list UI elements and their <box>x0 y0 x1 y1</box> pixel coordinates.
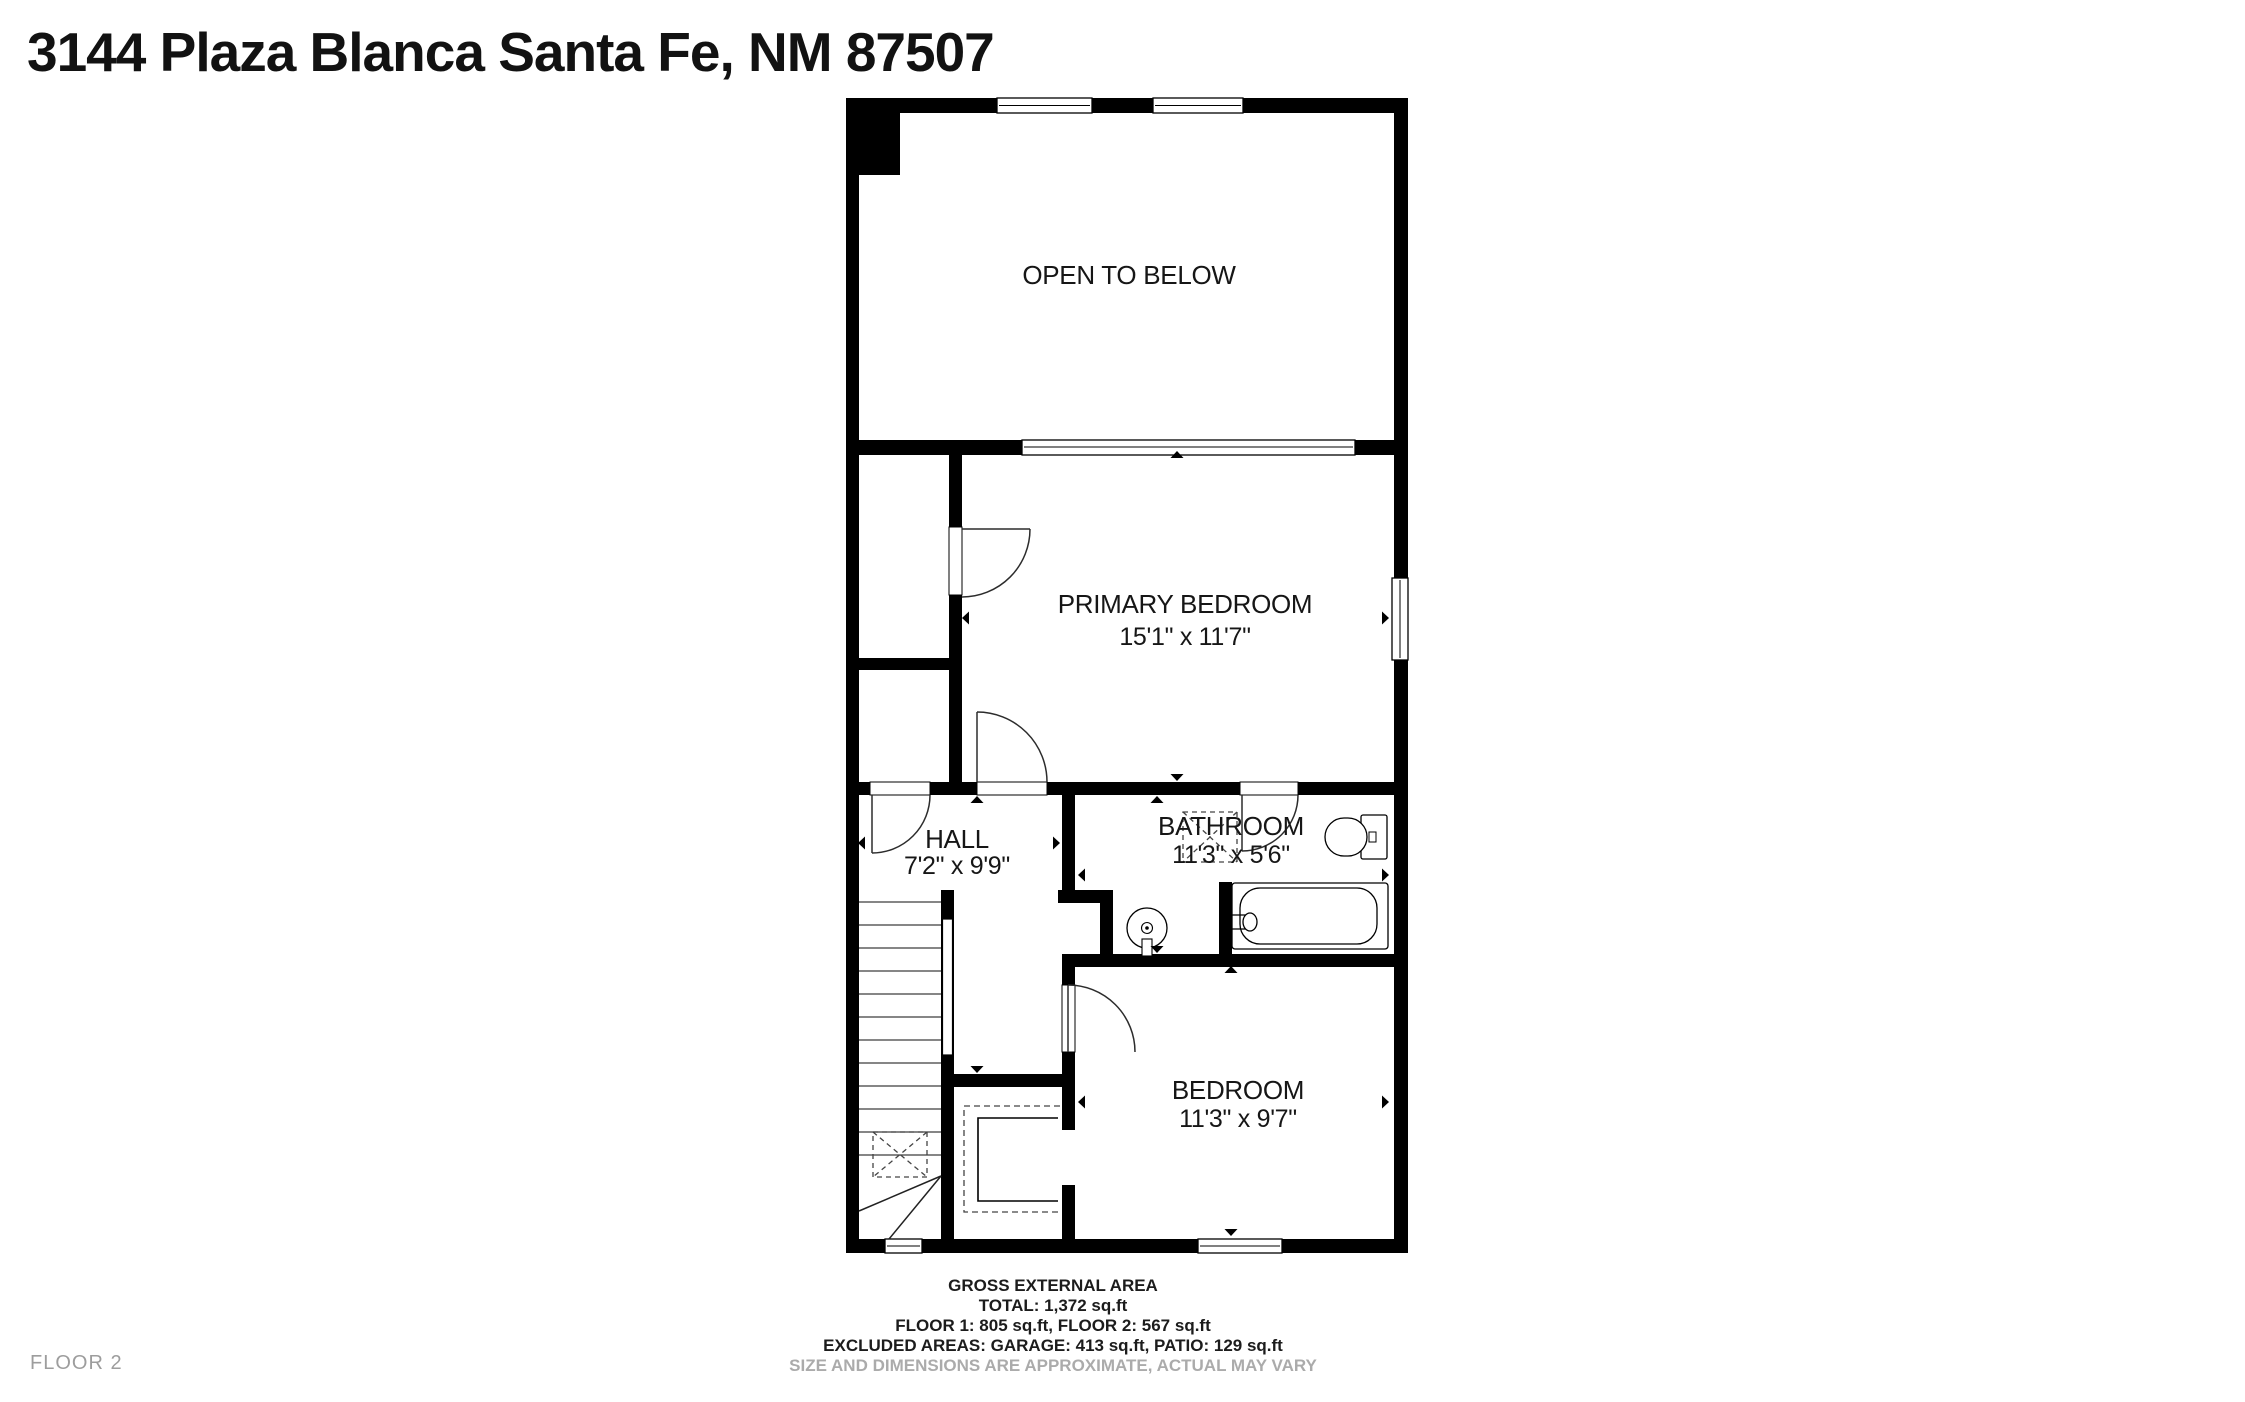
marker-up <box>1151 796 1164 803</box>
area-summary-total: TOTAL: 1,372 sq.ft <box>703 1296 1403 1316</box>
stair-winder-line <box>889 1176 941 1239</box>
area-summary-excluded: EXCLUDED AREAS: GARAGE: 413 sq.ft, PATIO… <box>703 1336 1403 1356</box>
door-arc <box>977 712 1047 782</box>
door-opening <box>1240 782 1298 795</box>
wall-corner-block <box>846 98 900 175</box>
marker-down <box>1225 1229 1238 1236</box>
bathtub-icon <box>1228 883 1388 949</box>
door-arc <box>1068 985 1135 1052</box>
wall-segment <box>1062 1185 1075 1239</box>
floor-plan: OPEN TO BELOW PRIMARY BEDROOM 15'1" x 11… <box>0 0 2245 1402</box>
marker-left <box>1078 869 1085 882</box>
marker-right <box>1053 837 1060 850</box>
toilet-button <box>1369 832 1376 842</box>
wall-segment <box>1062 954 1408 967</box>
room-label-hall: HALL <box>925 824 989 854</box>
marker-right <box>1382 612 1389 625</box>
marker-down <box>971 1066 984 1073</box>
wall-segment <box>1062 954 1075 985</box>
marker-left <box>858 837 865 850</box>
wall-segment <box>1100 903 1113 954</box>
wall-segment <box>1062 1052 1075 1130</box>
room-dim-bedroom: 11'3" x 9'7" <box>1179 1105 1297 1133</box>
area-summary-disclaimer: SIZE AND DIMENSIONS ARE APPROXIMATE, ACT… <box>703 1356 1403 1376</box>
room-dim-bathroom: 11'3" x 5'6" <box>1172 841 1290 869</box>
toilet-icon <box>1325 815 1387 859</box>
stair-handrail <box>943 919 953 1055</box>
wall-segment <box>846 98 1407 113</box>
room-label-open-to-below: OPEN TO BELOW <box>1022 260 1236 290</box>
room-label-primary-bedroom: PRIMARY BEDROOM <box>1058 589 1313 619</box>
marker-right <box>1382 869 1389 882</box>
room-dim-hall: 7'2" x 9'9" <box>904 852 1010 880</box>
marker-up <box>971 796 984 803</box>
marker-left <box>962 612 969 625</box>
wall-segment <box>846 1239 1407 1253</box>
floor-label: FLOOR 2 <box>30 1352 123 1375</box>
room-label-bedroom: BEDROOM <box>1172 1075 1304 1105</box>
door-arc <box>962 529 1030 597</box>
door-arc <box>872 795 930 853</box>
marker-left <box>1078 1096 1085 1109</box>
wall-segment <box>846 658 962 670</box>
sink-icon <box>1127 908 1167 956</box>
wall-segment <box>1062 795 1075 892</box>
marker-right <box>1382 1096 1389 1109</box>
wall-segment <box>1394 98 1408 1253</box>
stair-winder-line <box>859 1176 941 1211</box>
tub-faucet <box>1243 913 1257 931</box>
marker-down <box>1171 774 1184 781</box>
door-opening <box>949 527 962 595</box>
door-opening <box>977 782 1047 795</box>
room-label-bathroom: BATHROOM <box>1158 811 1304 841</box>
area-summary-floors: FLOOR 1: 805 sq.ft, FLOOR 2: 567 sq.ft <box>703 1316 1403 1336</box>
marker-up <box>1225 966 1238 973</box>
closet-wardrobe <box>964 1106 1060 1212</box>
area-summary: GROSS EXTERNAL AREA TOTAL: 1,372 sq.ft F… <box>703 1276 1403 1376</box>
wall-segment <box>846 98 859 1253</box>
room-labels: OPEN TO BELOW PRIMARY BEDROOM 15'1" x 11… <box>904 260 1312 1133</box>
toilet-bowl <box>1325 818 1367 856</box>
wall-segment <box>949 440 962 795</box>
staircase <box>859 902 941 1239</box>
area-summary-heading: GROSS EXTERNAL AREA <box>703 1276 1403 1296</box>
sink-faucet <box>1142 939 1152 956</box>
door-opening <box>870 782 930 795</box>
wall-segment <box>941 1074 1075 1087</box>
wall-segment <box>1219 882 1232 954</box>
room-dim-primary-bedroom: 15'1" x 11'7" <box>1119 623 1250 651</box>
